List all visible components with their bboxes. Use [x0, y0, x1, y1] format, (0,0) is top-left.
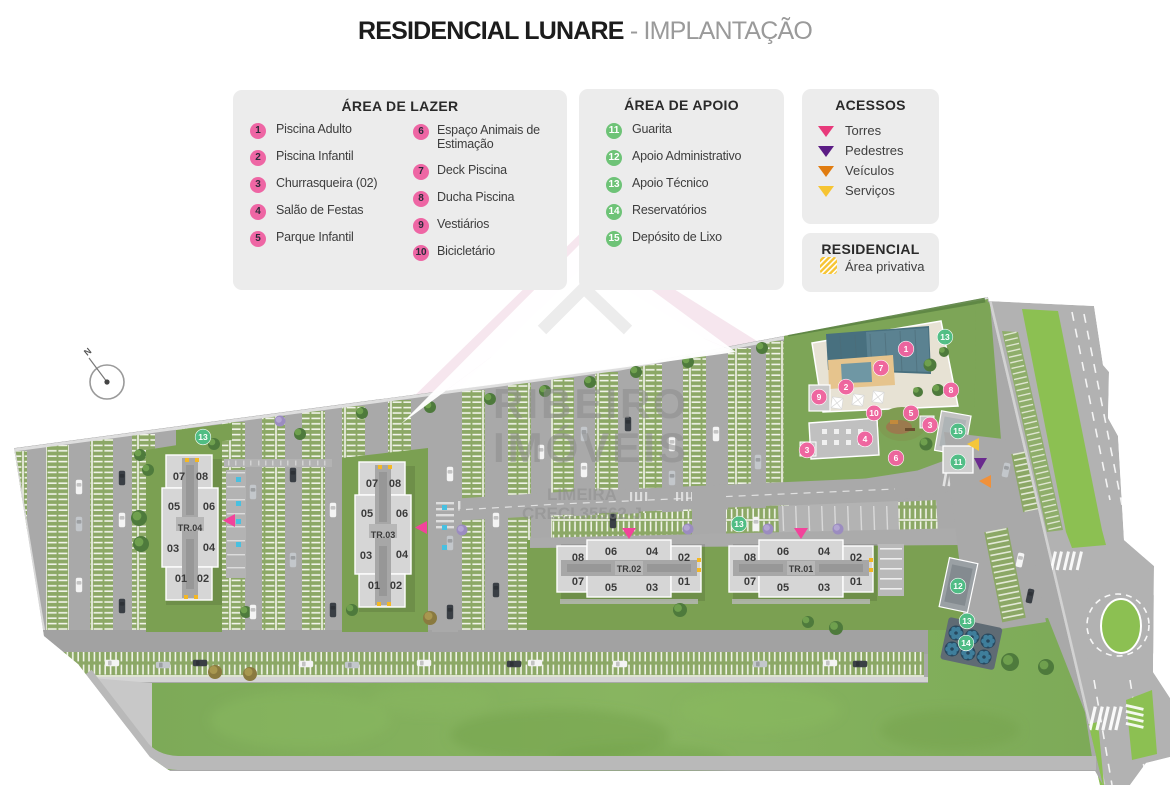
svg-text:07: 07 [744, 576, 756, 588]
svg-text:02: 02 [850, 552, 862, 564]
svg-text:05: 05 [361, 508, 373, 520]
svg-text:9: 9 [817, 392, 822, 402]
svg-text:08: 08 [196, 471, 208, 483]
svg-text:02: 02 [390, 580, 402, 592]
svg-text:3: 3 [928, 420, 933, 430]
svg-text:06: 06 [777, 546, 789, 558]
svg-text:13: 13 [734, 519, 744, 529]
svg-text:13: 13 [962, 616, 972, 626]
svg-text:13: 13 [940, 332, 950, 342]
svg-text:03: 03 [167, 543, 179, 555]
svg-text:04: 04 [396, 549, 409, 561]
svg-text:01: 01 [678, 576, 690, 588]
svg-text:15: 15 [953, 426, 963, 436]
svg-text:TR.04: TR.04 [178, 523, 203, 533]
svg-text:8: 8 [949, 385, 954, 395]
svg-text:06: 06 [203, 501, 215, 513]
svg-text:01: 01 [368, 580, 380, 592]
svg-text:TR.02: TR.02 [617, 564, 642, 574]
svg-text:08: 08 [744, 552, 756, 564]
svg-text:LIMEIRA: LIMEIRA [547, 485, 617, 504]
svg-text:3: 3 [805, 445, 810, 455]
svg-text:03: 03 [646, 582, 658, 594]
svg-text:RIBEIRO: RIBEIRO [493, 380, 689, 427]
svg-text:1: 1 [904, 344, 909, 354]
svg-text:03: 03 [818, 582, 830, 594]
svg-text:01: 01 [850, 576, 862, 588]
svg-text:05: 05 [168, 501, 180, 513]
svg-text:02: 02 [197, 573, 209, 585]
svg-text:02: 02 [678, 552, 690, 564]
svg-text:7: 7 [879, 363, 884, 373]
svg-text:04: 04 [818, 546, 831, 558]
svg-text:11: 11 [954, 457, 963, 467]
svg-text:08: 08 [389, 478, 401, 490]
svg-text:05: 05 [605, 582, 617, 594]
svg-text:08: 08 [572, 552, 584, 564]
svg-text:TR.01: TR.01 [789, 564, 814, 574]
svg-text:CRECI 35562-J: CRECI 35562-J [522, 504, 642, 523]
svg-text:06: 06 [396, 508, 408, 520]
svg-text:N: N [82, 346, 93, 358]
svg-text:06: 06 [605, 546, 617, 558]
svg-text:07: 07 [173, 471, 185, 483]
svg-text:05: 05 [777, 582, 789, 594]
svg-text:IMÓVEIS: IMÓVEIS [493, 423, 689, 471]
svg-text:01: 01 [175, 573, 187, 585]
svg-text:5: 5 [909, 408, 914, 418]
svg-text:TR.03: TR.03 [371, 530, 396, 540]
svg-text:6: 6 [894, 453, 899, 463]
svg-text:04: 04 [646, 546, 659, 558]
svg-text:10: 10 [869, 408, 879, 418]
svg-text:03: 03 [360, 550, 372, 562]
svg-text:4: 4 [863, 434, 868, 444]
svg-text:04: 04 [203, 542, 216, 554]
svg-text:14: 14 [961, 638, 971, 648]
svg-text:07: 07 [366, 478, 378, 490]
svg-text:13: 13 [198, 432, 208, 442]
svg-text:2: 2 [844, 382, 849, 392]
svg-text:12: 12 [953, 581, 963, 591]
svg-text:07: 07 [572, 576, 584, 588]
